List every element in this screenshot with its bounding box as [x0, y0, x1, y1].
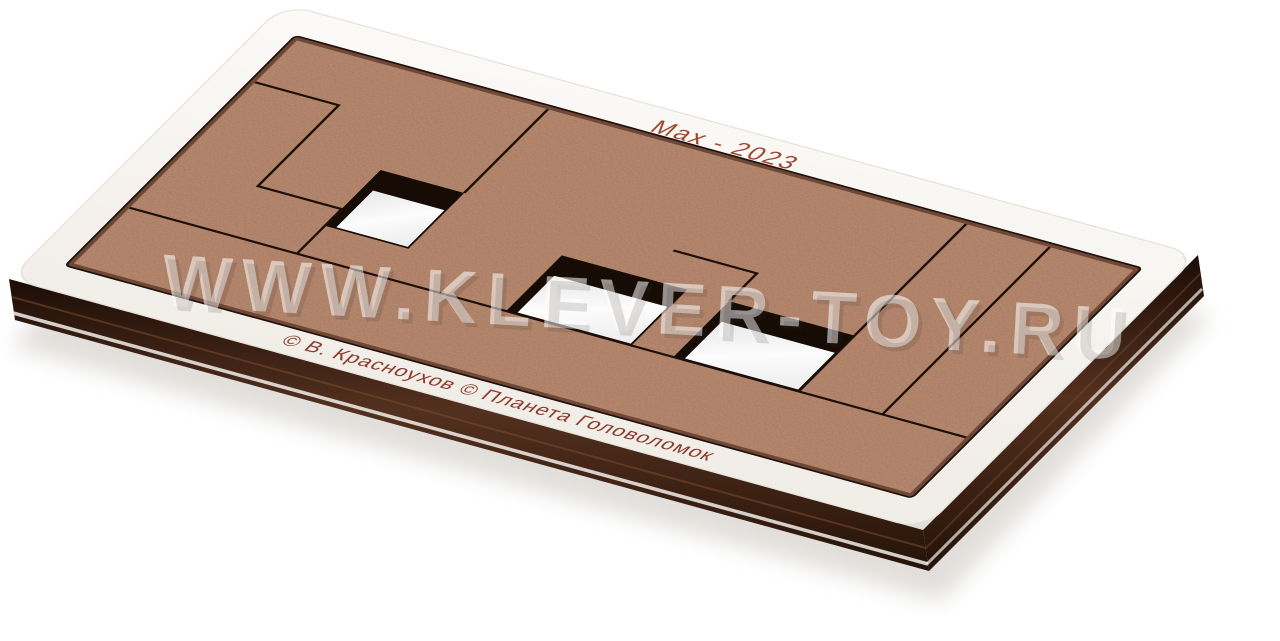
product-photo: Max - 2023 © В. Красноухов © Планета Гол… [0, 0, 1280, 641]
puzzle-photo-canvas: Max - 2023 © В. Красноухов © Планета Гол… [0, 0, 1280, 641]
